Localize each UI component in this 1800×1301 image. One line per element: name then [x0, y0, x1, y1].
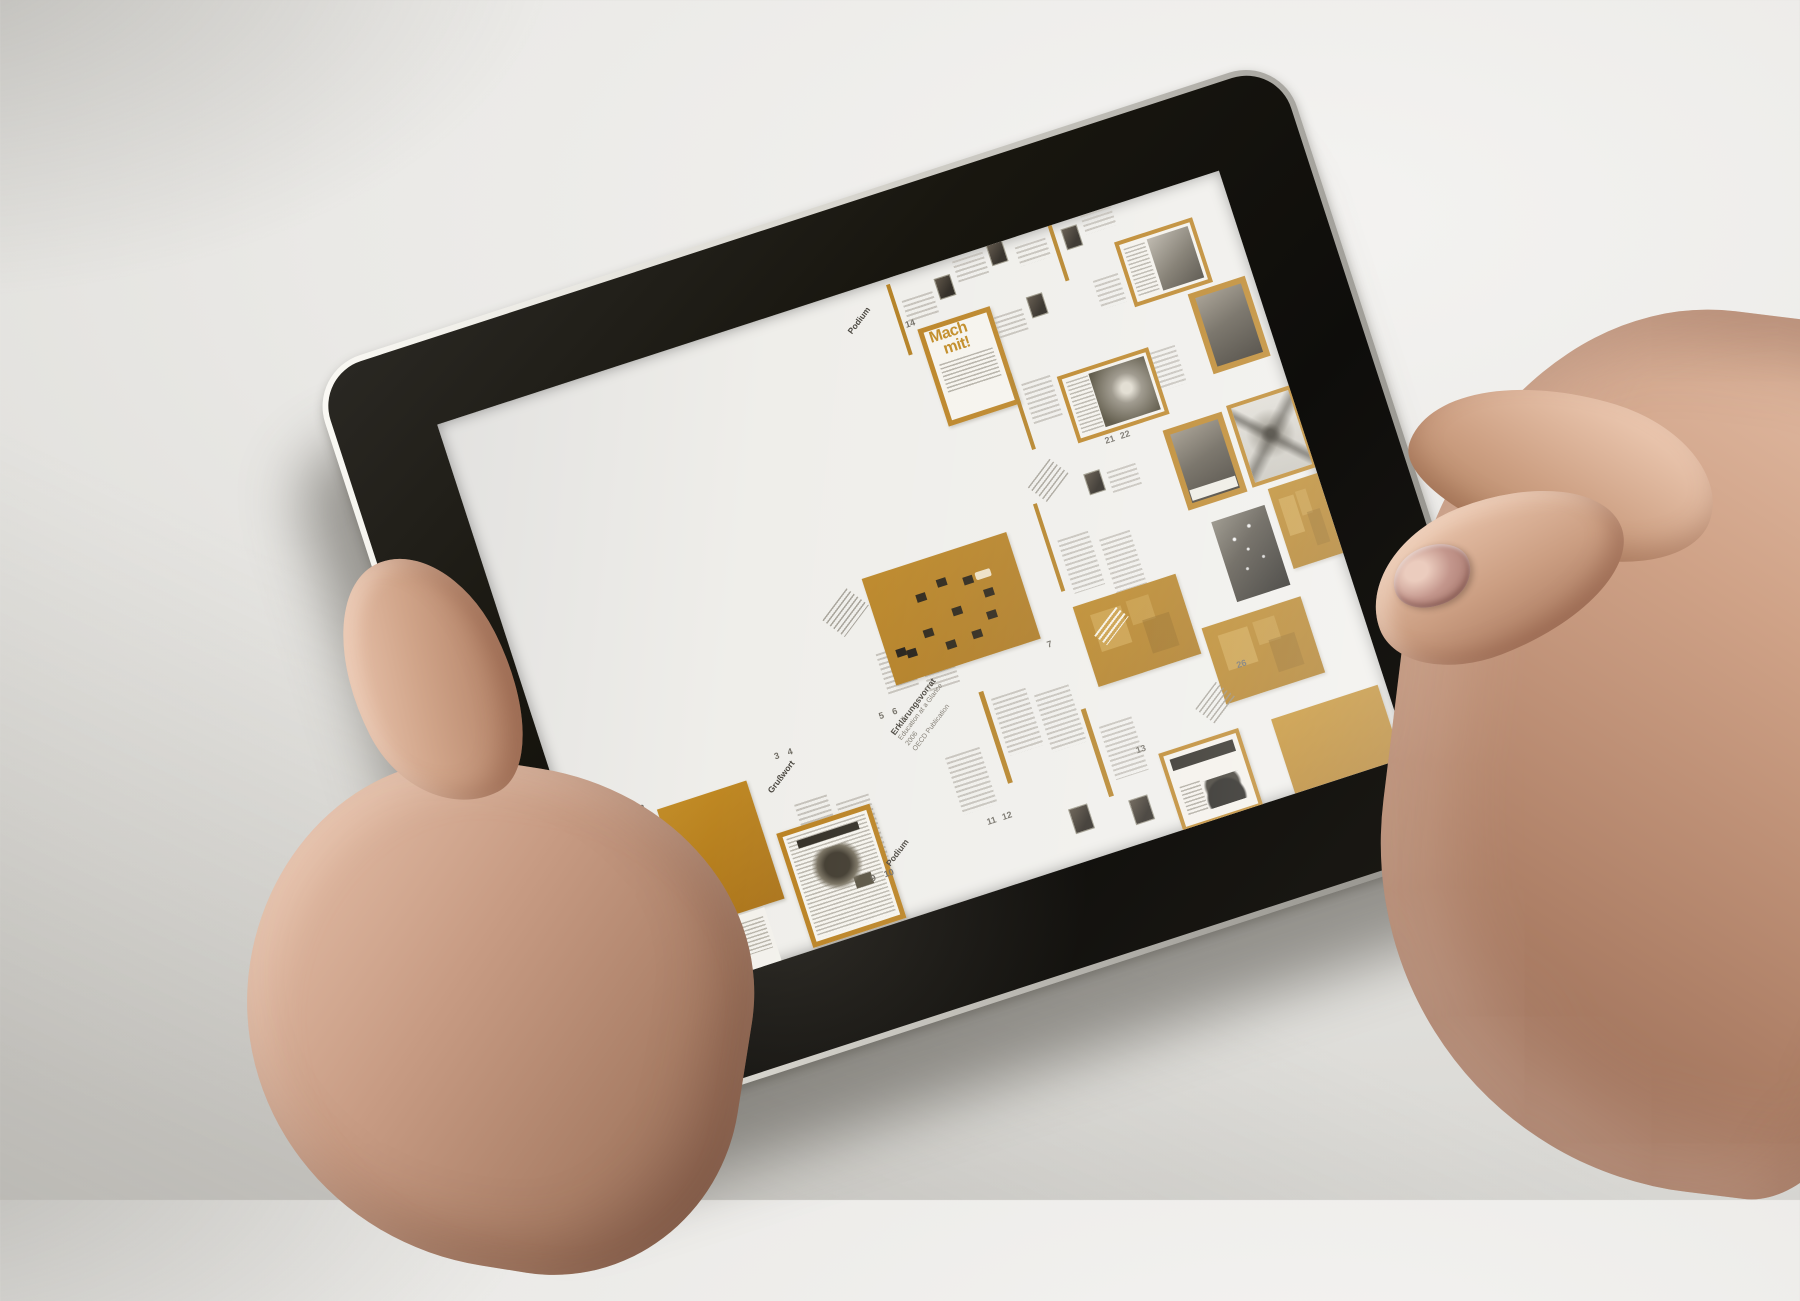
text-block — [1093, 273, 1127, 310]
photo-thumbnail — [987, 241, 1007, 265]
text-block — [945, 747, 998, 815]
text-block — [1099, 530, 1147, 593]
spread-caption: Podium — [884, 837, 912, 869]
text-block — [952, 252, 989, 283]
photo-thumbnail — [1062, 225, 1082, 249]
page-number: 12 — [1001, 810, 1013, 822]
page-number: 3 — [773, 751, 781, 761]
page-number: 22 — [1119, 429, 1131, 441]
page-number: 5 — [878, 711, 886, 721]
text-block — [1057, 531, 1105, 594]
text-block — [1080, 206, 1117, 235]
page-number: 11 — [986, 815, 998, 827]
text-block — [1107, 463, 1142, 493]
photo-thumbnail — [935, 275, 955, 299]
page-number: 6 — [891, 707, 899, 717]
text-block — [1015, 238, 1052, 267]
page-number: 7 — [1046, 640, 1054, 650]
photo-thumbnail — [1027, 294, 1047, 318]
cover-page — [1188, 276, 1271, 374]
photo-thumbnail — [1129, 796, 1154, 824]
page-number: 13 — [1135, 744, 1147, 756]
caption-lines — [1028, 459, 1069, 502]
photo-thumbnail — [1084, 470, 1104, 494]
photo-thumbnail — [1069, 805, 1094, 833]
caption-lines — [822, 588, 868, 637]
text-block — [993, 308, 1028, 338]
spread-caption: Podium — [846, 305, 874, 337]
orange-page — [1271, 685, 1402, 794]
ad-card-page — [1158, 728, 1263, 832]
orange-spread — [1073, 574, 1202, 687]
photo-scene: { "scene": { "description_colors": { "ba… — [0, 0, 1800, 1200]
people-table-spread — [862, 532, 1041, 685]
text-block — [1021, 375, 1063, 424]
page-number: 21 — [1104, 434, 1116, 446]
spread-caption: Grußwort — [766, 758, 798, 795]
page-number: 4 — [786, 747, 794, 757]
